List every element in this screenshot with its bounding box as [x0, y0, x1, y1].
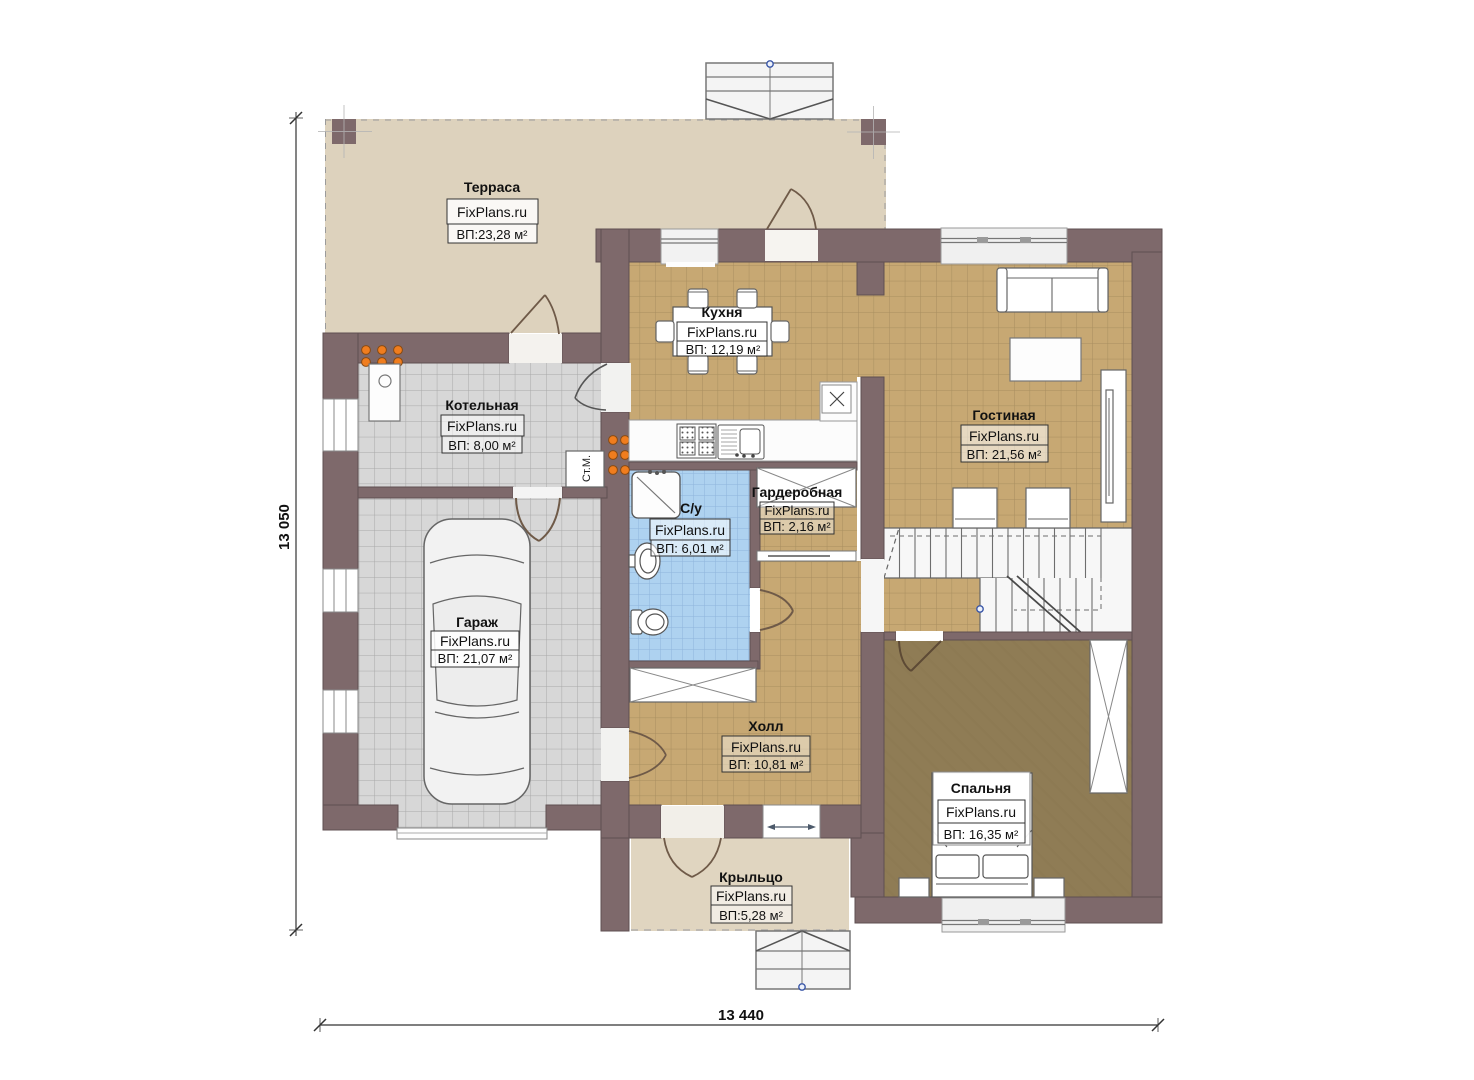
svg-text:FixPlans.ru: FixPlans.ru [969, 428, 1039, 444]
svg-text:ВП: 21,07 м²: ВП: 21,07 м² [438, 651, 513, 666]
svg-text:FixPlans.ru: FixPlans.ru [655, 522, 725, 538]
svg-text:Гостиная: Гостиная [972, 407, 1035, 423]
svg-text:С/у: С/у [680, 500, 702, 516]
svg-text:Крыльцо: Крыльцо [719, 869, 783, 885]
svg-text:ВП:5,28 м²: ВП:5,28 м² [719, 908, 783, 923]
svg-text:Гараж: Гараж [456, 614, 499, 630]
svg-text:Котельная: Котельная [445, 397, 518, 413]
svg-text:ВП: 16,35 м²: ВП: 16,35 м² [944, 827, 1019, 842]
svg-text:FixPlans.ru: FixPlans.ru [440, 633, 510, 649]
svg-text:FixPlans.ru: FixPlans.ru [764, 503, 829, 518]
svg-text:Спальня: Спальня [951, 780, 1011, 796]
svg-text:ВП: 2,16 м²: ВП: 2,16 м² [763, 519, 831, 534]
svg-text:FixPlans.ru: FixPlans.ru [447, 418, 517, 434]
svg-text:13 440: 13 440 [718, 1007, 764, 1024]
svg-text:FixPlans.ru: FixPlans.ru [716, 888, 786, 904]
svg-text:Ст.М.: Ст.М. [581, 455, 593, 482]
svg-text:ВП: 8,00 м²: ВП: 8,00 м² [448, 438, 516, 453]
svg-text:FixPlans.ru: FixPlans.ru [457, 204, 527, 220]
svg-text:Холл: Холл [748, 718, 783, 734]
svg-text:ВП: 10,81 м²: ВП: 10,81 м² [729, 757, 804, 772]
svg-text:ВП:23,28 м²: ВП:23,28 м² [456, 227, 528, 242]
svg-text:ВП: 6,01 м²: ВП: 6,01 м² [656, 541, 724, 556]
svg-text:FixPlans.ru: FixPlans.ru [731, 739, 801, 755]
svg-text:Кухня: Кухня [702, 304, 743, 320]
svg-text:ВП: 21,56 м²: ВП: 21,56 м² [967, 447, 1042, 462]
svg-text:ВП: 12,19 м²: ВП: 12,19 м² [686, 342, 761, 357]
svg-text:FixPlans.ru: FixPlans.ru [946, 804, 1016, 820]
svg-text:13 050: 13 050 [276, 504, 293, 550]
svg-text:Терраса: Терраса [464, 179, 520, 195]
svg-text:Гардеробная: Гардеробная [752, 484, 843, 500]
svg-text:FixPlans.ru: FixPlans.ru [687, 324, 757, 340]
